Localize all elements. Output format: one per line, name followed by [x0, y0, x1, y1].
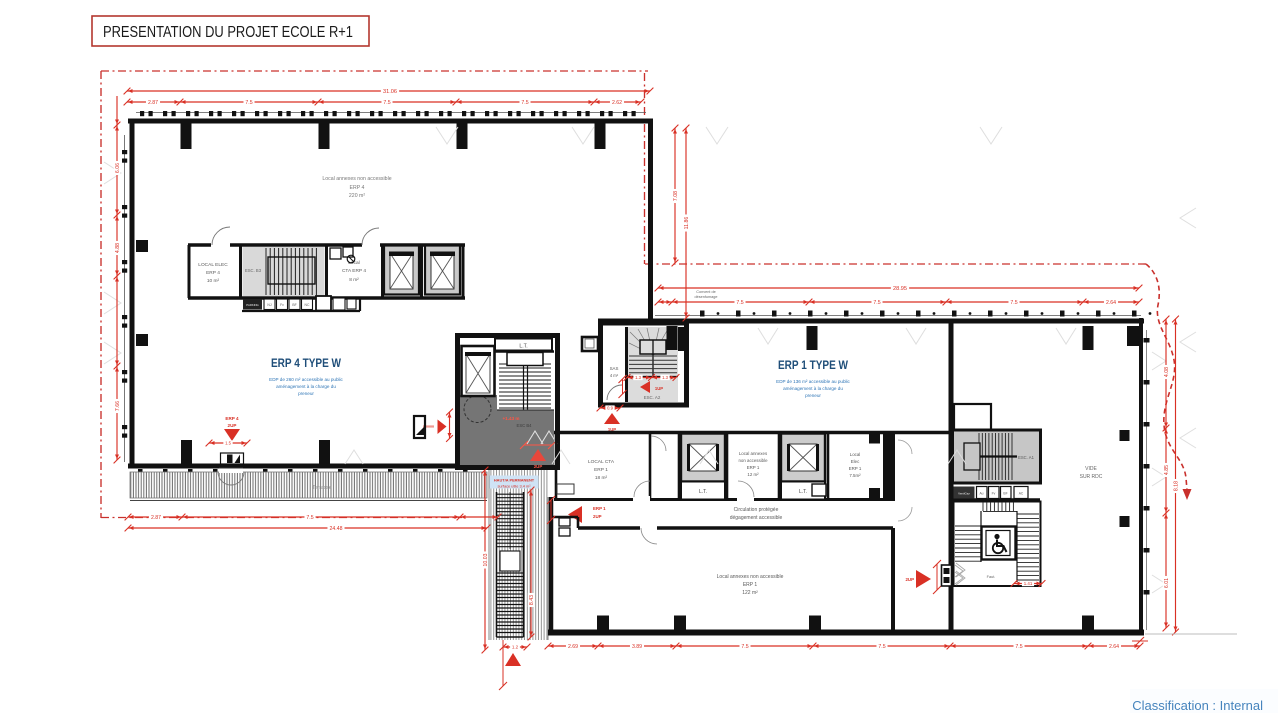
svg-text:AC: AC — [1019, 492, 1024, 496]
svg-text:8.18: 8.18 — [1173, 481, 1179, 491]
svg-text:7.5: 7.5 — [521, 100, 528, 106]
svg-text:6.01: 6.01 — [1164, 578, 1170, 588]
svg-text:non accessible: non accessible — [738, 458, 768, 463]
svg-text:désenfumage: désenfumage — [694, 295, 717, 299]
svg-text:ESC. A1: ESC. A1 — [1018, 455, 1034, 460]
svg-text:10 m²: 10 m² — [207, 278, 220, 284]
svg-text:12 m²: 12 m² — [747, 472, 759, 477]
svg-text:EDP de 260 m² accessible au pu: EDP de 260 m² accessible au public — [269, 377, 343, 382]
svg-text:7.5: 7.5 — [1010, 300, 1017, 306]
svg-text:0.9: 0.9 — [607, 406, 613, 411]
svg-text:28.95: 28.95 — [893, 286, 907, 292]
svg-text:L.T.: L.T. — [519, 344, 527, 350]
svg-text:4.88: 4.88 — [115, 243, 121, 253]
svg-text:ERP 1: ERP 1 — [594, 467, 608, 473]
svg-text:2.87: 2.87 — [148, 100, 158, 106]
svg-text:Circulation protégée: Circulation protégée — [734, 507, 779, 513]
svg-text:7.5: 7.5 — [245, 100, 252, 106]
svg-text:11.86: 11.86 — [684, 217, 690, 230]
svg-text:2.64: 2.64 — [1109, 644, 1119, 650]
svg-text:220 m²: 220 m² — [349, 193, 365, 199]
svg-text:7.5: 7.5 — [736, 300, 743, 306]
svg-text:ESC. A2: ESC. A2 — [644, 395, 661, 400]
svg-text:1.41: 1.41 — [1024, 581, 1033, 586]
svg-text:ERP 1 TYPE W: ERP 1 TYPE W — [778, 360, 848, 372]
svg-text:2.87: 2.87 — [151, 515, 161, 521]
svg-text:122 m²: 122 m² — [742, 590, 758, 596]
svg-text:1.3: 1.3 — [635, 375, 641, 380]
svg-text:LOCAL CTA: LOCAL CTA — [588, 459, 615, 465]
svg-text:24.48: 24.48 — [330, 526, 343, 532]
svg-text:6.06: 6.06 — [115, 163, 121, 173]
svg-text:7.5: 7.5 — [741, 644, 748, 650]
svg-text:1.2: 1.2 — [512, 645, 519, 650]
svg-text:2.69: 2.69 — [568, 644, 578, 650]
svg-text:Local: Local — [850, 452, 861, 457]
svg-text:2UP: 2UP — [534, 464, 543, 469]
svg-text:4.85: 4.85 — [1164, 465, 1170, 475]
svg-text:ERP 4: ERP 4 — [206, 270, 220, 276]
svg-text:ERP 1: ERP 1 — [849, 466, 862, 471]
svg-text:Fv: Fv — [280, 303, 284, 307]
svg-text:EDP de 136 m² accessible au pu: EDP de 136 m² accessible au public — [776, 379, 850, 384]
svg-text:2.62: 2.62 — [612, 100, 622, 106]
svg-text:ERP 1: ERP 1 — [743, 582, 758, 588]
svg-text:VIDE: VIDE — [1085, 466, 1097, 472]
svg-text:4 m²: 4 m² — [610, 373, 619, 378]
svg-text:NC: NC — [305, 303, 310, 307]
svg-text:Local annexes: Local annexes — [739, 451, 768, 456]
svg-text:preneur: preneur — [805, 393, 821, 398]
svg-text:ESC. B3: ESC. B3 — [245, 268, 262, 273]
svg-text:Convent de: Convent de — [696, 290, 715, 294]
svg-text:preneur: preneur — [298, 391, 314, 396]
svg-text:CTA ERP 4: CTA ERP 4 — [342, 268, 366, 274]
svg-text:7.5: 7.5 — [878, 644, 885, 650]
svg-text:1UP: 1UP — [655, 386, 663, 391]
svg-text:SUR RDC: SUR RDC — [1080, 474, 1103, 480]
svg-text:7.5: 7.5 — [873, 300, 880, 306]
svg-text:BF: BF — [1003, 492, 1007, 496]
svg-text:1.3: 1.3 — [662, 375, 668, 380]
svg-text:2UP: 2UP — [228, 423, 237, 428]
svg-text:10.03: 10.03 — [483, 553, 489, 566]
svg-text:Classification : Internal: Classification : Internal — [1132, 698, 1263, 713]
svg-text:7.5: 7.5 — [1015, 644, 1022, 650]
svg-text:7.5: 7.5 — [383, 100, 390, 106]
svg-text:PARKING: PARKING — [246, 303, 258, 307]
svg-text:2UP: 2UP — [593, 514, 602, 519]
svg-text:Au: Au — [979, 492, 983, 496]
svg-text:+1.43 m: +1.43 m — [503, 416, 520, 421]
svg-text:aménagement à la charge du: aménagement à la charge du — [276, 384, 336, 389]
svg-text:ERP 4: ERP 4 — [225, 416, 239, 421]
svg-text:Elec: Elec — [851, 459, 860, 464]
svg-text:ERP 1: ERP 1 — [747, 465, 760, 470]
svg-text:dégagement accessible: dégagement accessible — [730, 515, 783, 521]
svg-text:18 m²: 18 m² — [595, 475, 608, 481]
svg-text:ERP 1: ERP 1 — [593, 506, 606, 511]
svg-text:2UP: 2UP — [905, 577, 914, 582]
svg-text:L.T.: L.T. — [699, 489, 707, 495]
svg-text:aménagement à la charge du: aménagement à la charge du — [783, 386, 843, 391]
svg-text:PRESENTATION DU PROJET ECOLE R: PRESENTATION DU PROJET ECOLE R+1 — [103, 24, 353, 41]
svg-text:1.5: 1.5 — [225, 441, 231, 446]
svg-text:BF: BF — [292, 303, 296, 307]
svg-text:Local annexes non accessible: Local annexes non accessible — [322, 176, 391, 182]
svg-text:Terrasse: Terrasse — [312, 485, 331, 491]
svg-text:Local annexes non accessible: Local annexes non accessible — [717, 574, 784, 580]
svg-text:7.08: 7.08 — [673, 191, 679, 201]
svg-text:31.06: 31.06 — [383, 89, 397, 95]
svg-text:ERP 4: ERP 4 — [350, 185, 365, 191]
svg-text:surface utile 3.4 m²: surface utile 3.4 m² — [497, 484, 531, 489]
svg-text:4.08: 4.08 — [1164, 367, 1170, 377]
svg-text:ESC B4: ESC B4 — [517, 423, 533, 428]
svg-text:7.5m²: 7.5m² — [849, 473, 861, 478]
svg-text:7.66: 7.66 — [115, 401, 121, 411]
svg-text:NJ: NJ — [267, 303, 271, 307]
svg-text:L.T.: L.T. — [799, 489, 807, 495]
svg-text:3.89: 3.89 — [632, 644, 642, 650]
svg-text:2.64: 2.64 — [1106, 300, 1116, 306]
svg-text:8.43: 8.43 — [529, 595, 535, 605]
svg-text:SAS: SAS — [610, 366, 619, 371]
svg-text:VentiGaz: VentiGaz — [958, 492, 970, 496]
svg-text:LOCAL ELEC: LOCAL ELEC — [198, 262, 228, 268]
svg-text:Fv: Fv — [992, 492, 996, 496]
svg-text:ERP 4 TYPE W: ERP 4 TYPE W — [271, 358, 341, 370]
svg-text:Faut.: Faut. — [987, 575, 996, 579]
svg-text:HAUT/A PERMANENT: HAUT/A PERMANENT — [494, 478, 535, 483]
svg-text:8 m²: 8 m² — [349, 277, 359, 283]
svg-text:7.5: 7.5 — [306, 515, 313, 521]
